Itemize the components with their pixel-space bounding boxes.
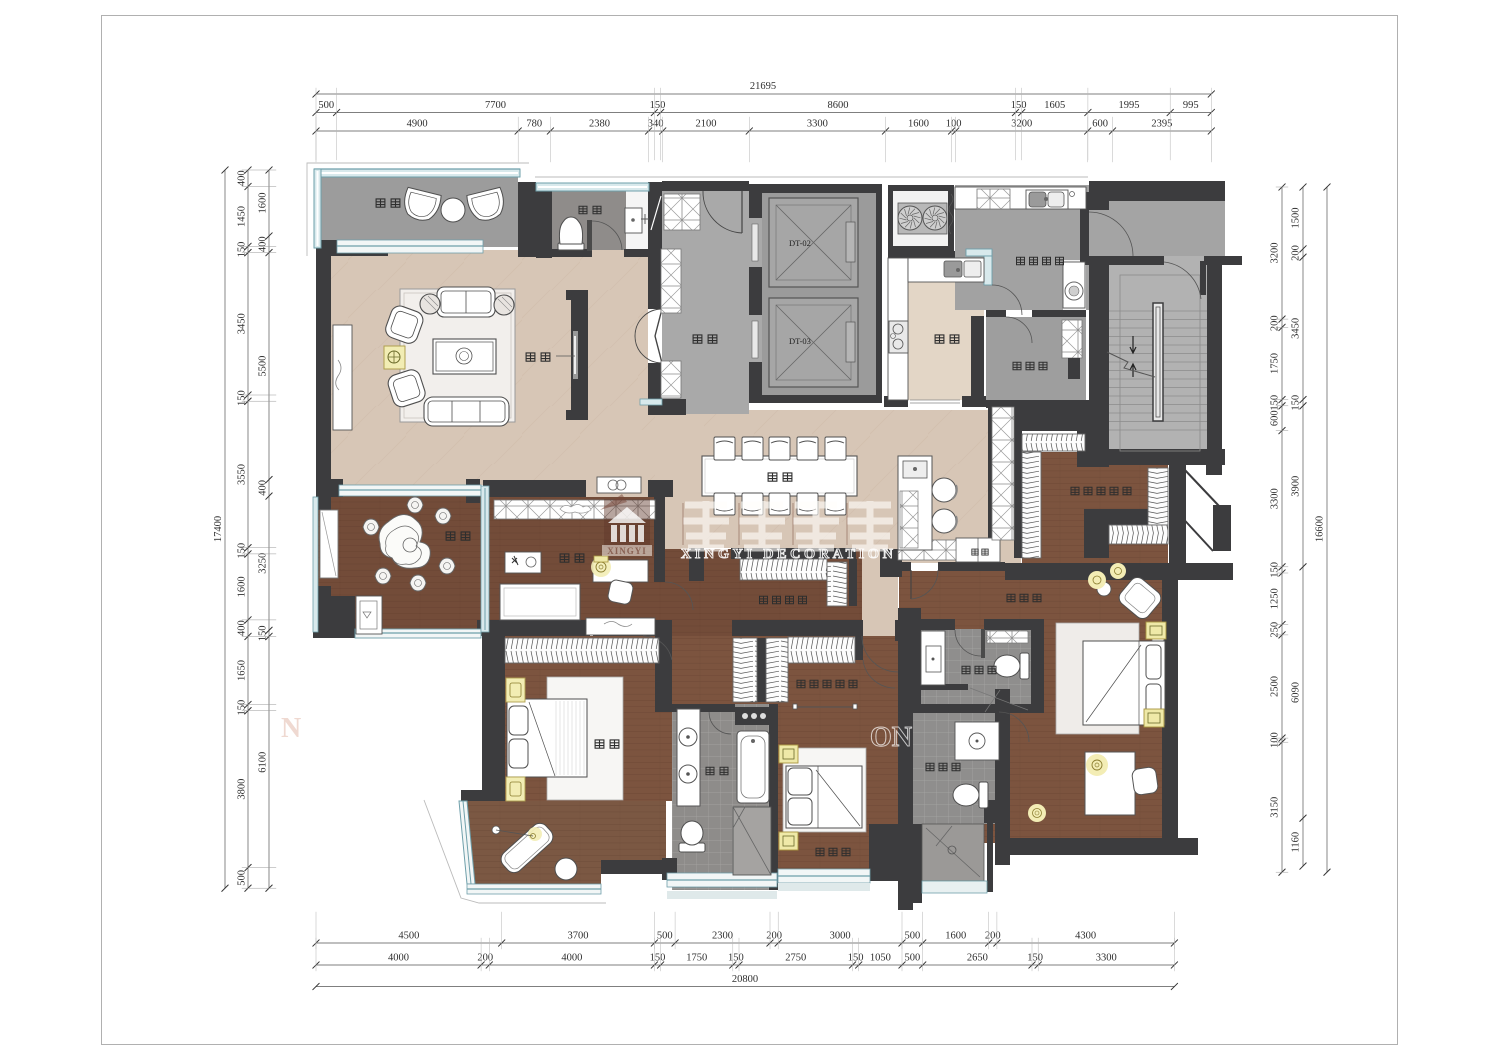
svg-text:6100: 6100 — [258, 752, 269, 773]
svg-text:4500: 4500 — [398, 931, 419, 942]
svg-text:3300: 3300 — [1270, 488, 1281, 509]
svg-text:17400: 17400 — [213, 516, 224, 542]
svg-text:500: 500 — [318, 100, 334, 111]
svg-text:400: 400 — [258, 236, 269, 252]
svg-text:8600: 8600 — [828, 100, 849, 111]
svg-text:DT-02: DT-02 — [789, 238, 811, 248]
svg-text:340: 340 — [648, 119, 664, 130]
svg-text:200: 200 — [477, 953, 493, 964]
svg-text:500: 500 — [237, 870, 248, 886]
svg-text:1600: 1600 — [258, 193, 269, 214]
svg-text:7700: 7700 — [485, 100, 506, 111]
svg-text:500: 500 — [904, 931, 920, 942]
svg-text:500: 500 — [904, 953, 920, 964]
svg-text:2380: 2380 — [589, 119, 610, 130]
svg-text:4300: 4300 — [1075, 931, 1096, 942]
svg-text:150: 150 — [728, 953, 744, 964]
svg-text:200: 200 — [985, 931, 1001, 942]
svg-text:1250: 1250 — [1270, 588, 1281, 609]
svg-text:150: 150 — [237, 543, 248, 559]
svg-text:100: 100 — [946, 119, 962, 130]
svg-text:150: 150 — [1291, 395, 1302, 411]
svg-text:1160: 1160 — [1291, 832, 1302, 853]
svg-text:150: 150 — [1027, 953, 1043, 964]
svg-text:1605: 1605 — [1044, 100, 1065, 111]
svg-text:4900: 4900 — [407, 119, 428, 130]
svg-text:XINGYI DECORATION: XINGYI DECORATION — [681, 547, 897, 562]
svg-text:3200: 3200 — [1270, 243, 1281, 264]
svg-text:400: 400 — [258, 480, 269, 496]
svg-text:2500: 2500 — [1270, 676, 1281, 697]
svg-text:200: 200 — [1270, 315, 1281, 331]
svg-text:1995: 1995 — [1119, 100, 1140, 111]
svg-text:3250: 3250 — [258, 553, 269, 574]
svg-text:20800: 20800 — [732, 974, 758, 985]
svg-text:250: 250 — [1270, 622, 1281, 638]
svg-text:3150: 3150 — [1270, 797, 1281, 818]
svg-text:6090: 6090 — [1291, 682, 1302, 703]
svg-text:N: N — [281, 713, 301, 744]
svg-text:16600: 16600 — [1315, 516, 1326, 542]
svg-text:150: 150 — [650, 100, 666, 111]
svg-text:150: 150 — [237, 700, 248, 716]
svg-text:3450: 3450 — [237, 313, 248, 334]
svg-text:2300: 2300 — [712, 931, 733, 942]
svg-text:150: 150 — [848, 953, 864, 964]
svg-text:150: 150 — [237, 242, 248, 258]
svg-text:2395: 2395 — [1151, 119, 1172, 130]
svg-text:1450: 1450 — [237, 206, 248, 227]
svg-text:150: 150 — [650, 953, 666, 964]
svg-text:4000: 4000 — [561, 953, 582, 964]
svg-text:ON: ON — [870, 722, 912, 753]
svg-text:1600: 1600 — [945, 931, 966, 942]
svg-text:1750: 1750 — [1270, 353, 1281, 374]
svg-text:1050: 1050 — [870, 953, 891, 964]
svg-text:150: 150 — [258, 625, 269, 641]
svg-text:400: 400 — [237, 170, 248, 186]
svg-text:1750: 1750 — [686, 953, 707, 964]
svg-text:3900: 3900 — [1291, 476, 1302, 497]
svg-text:3000: 3000 — [830, 931, 851, 942]
svg-text:150: 150 — [237, 390, 248, 406]
svg-text:200: 200 — [1291, 245, 1302, 261]
svg-text:5500: 5500 — [258, 356, 269, 377]
svg-text:3700: 3700 — [568, 931, 589, 942]
svg-text:100: 100 — [1270, 732, 1281, 748]
svg-text:2100: 2100 — [696, 119, 717, 130]
svg-text:1500: 1500 — [1291, 207, 1302, 228]
svg-text:DT-03: DT-03 — [789, 336, 811, 346]
svg-text:780: 780 — [526, 119, 542, 130]
svg-text:3300: 3300 — [807, 119, 828, 130]
svg-text:3450: 3450 — [1291, 318, 1302, 339]
svg-text:600: 600 — [1270, 410, 1281, 426]
svg-text:995: 995 — [1183, 100, 1199, 111]
svg-text:600: 600 — [1092, 119, 1108, 130]
svg-text:3300: 3300 — [1096, 953, 1117, 964]
svg-text:3800: 3800 — [237, 779, 248, 800]
svg-text:2750: 2750 — [785, 953, 806, 964]
svg-text:500: 500 — [657, 931, 673, 942]
svg-text:XINGYI: XINGYI — [607, 546, 647, 556]
svg-text:200: 200 — [766, 931, 782, 942]
svg-text:1650: 1650 — [237, 660, 248, 681]
svg-text:150: 150 — [1011, 100, 1027, 111]
svg-text:21695: 21695 — [750, 81, 776, 92]
svg-text:2650: 2650 — [967, 953, 988, 964]
svg-text:4000: 4000 — [388, 953, 409, 964]
svg-text:150: 150 — [1270, 395, 1281, 411]
svg-text:1600: 1600 — [237, 576, 248, 597]
svg-text:400: 400 — [237, 620, 248, 636]
svg-text:3550: 3550 — [237, 464, 248, 485]
svg-text:150: 150 — [1270, 562, 1281, 578]
svg-text:1600: 1600 — [908, 119, 929, 130]
